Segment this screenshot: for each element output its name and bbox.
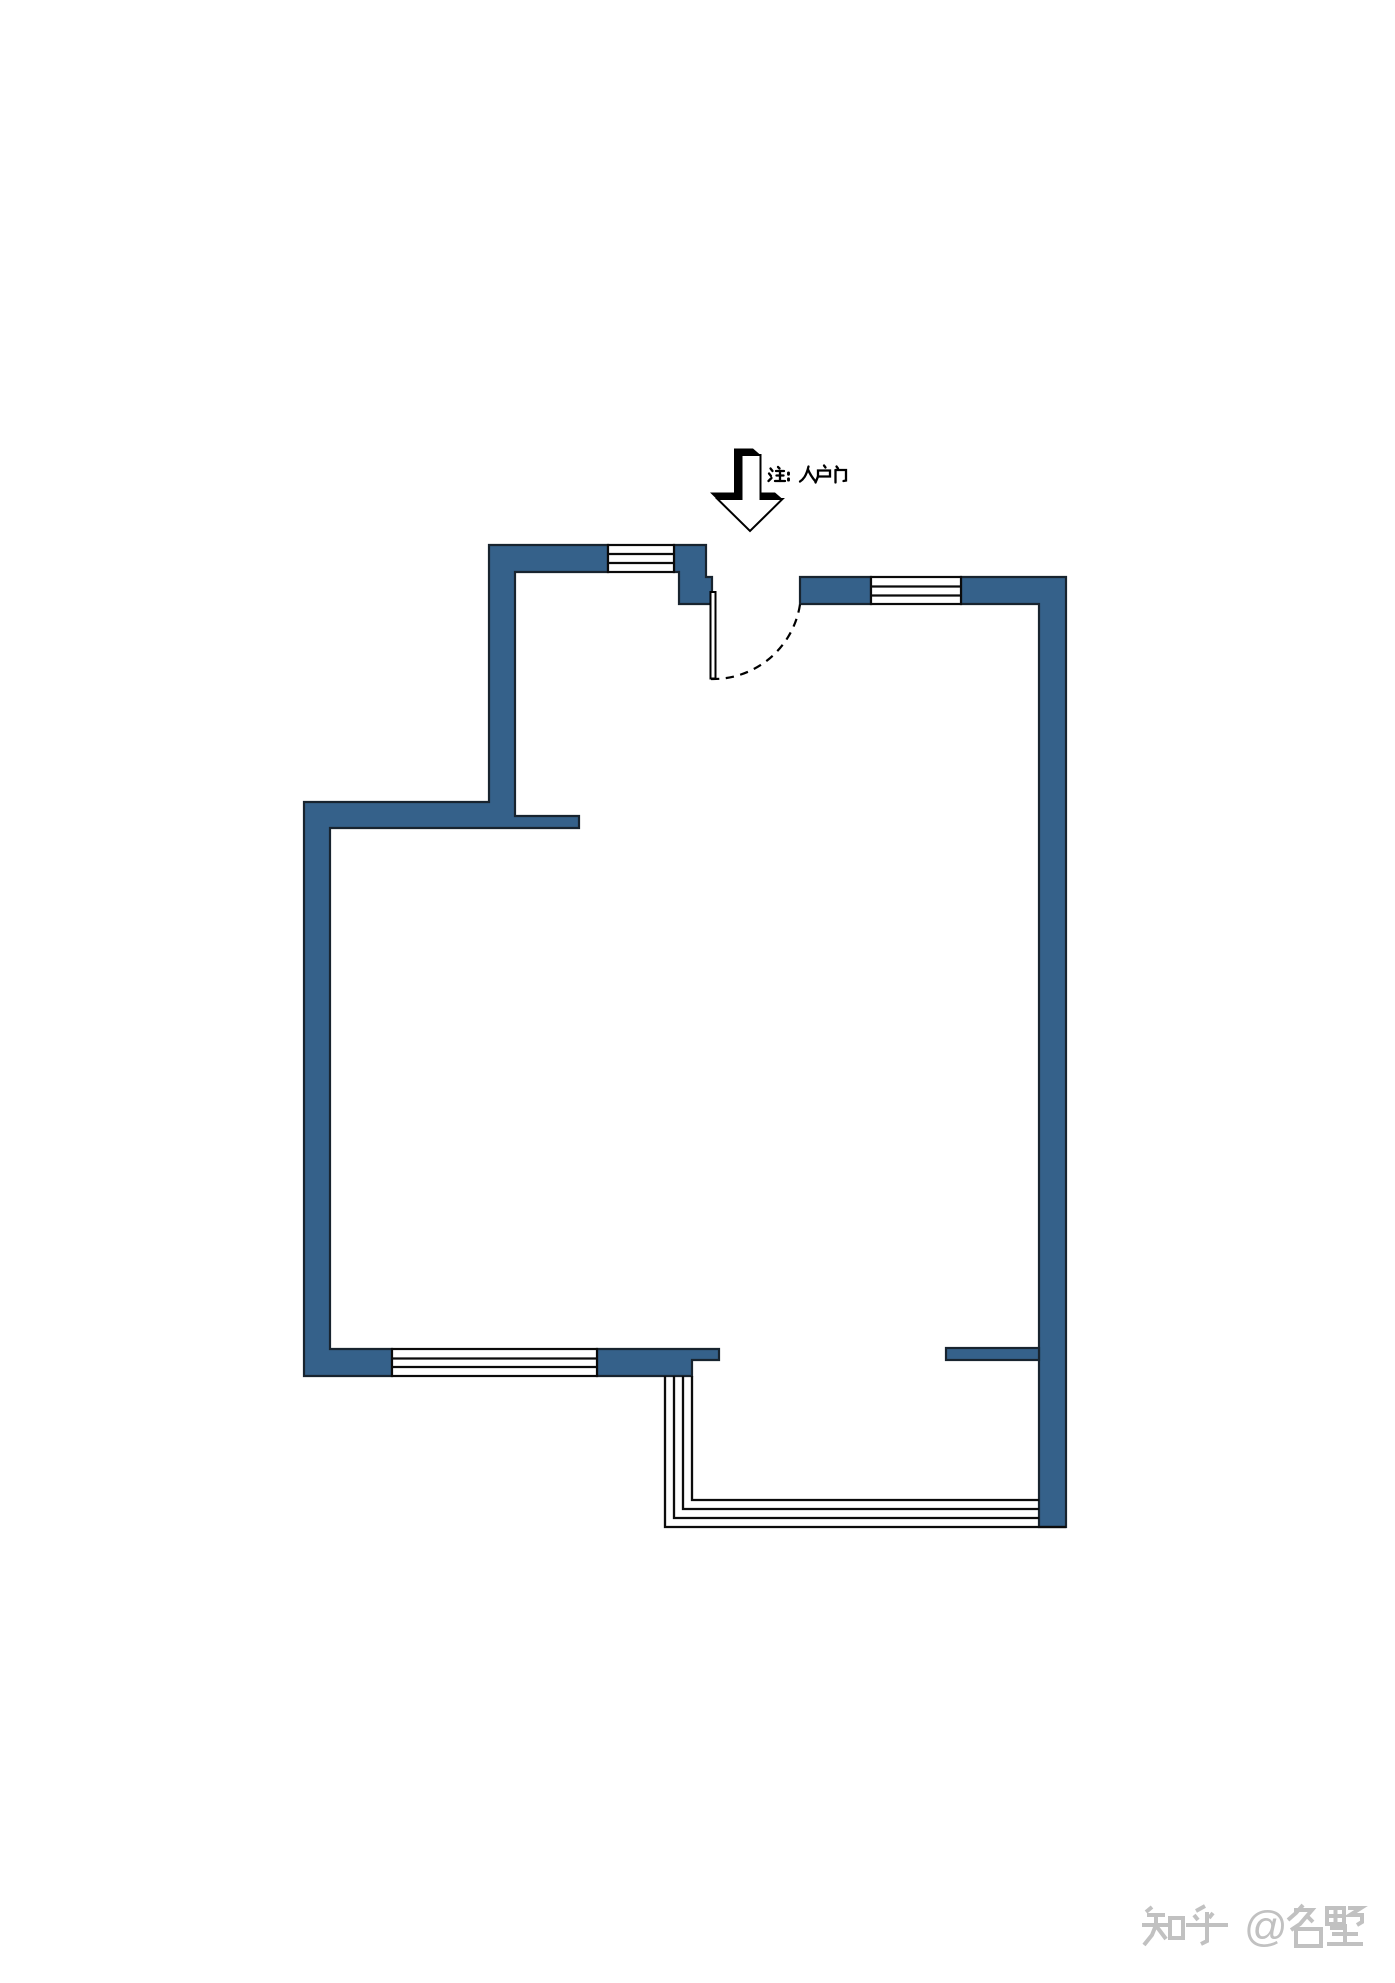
svg-text:@: @ bbox=[1244, 1903, 1288, 1951]
